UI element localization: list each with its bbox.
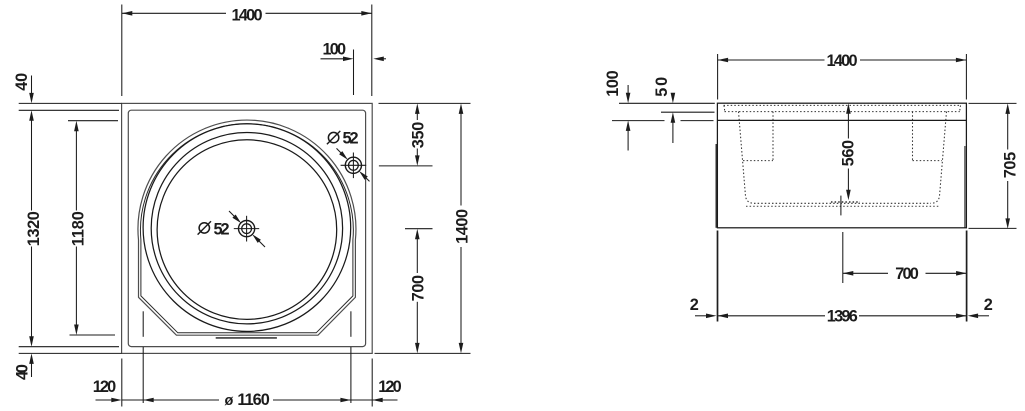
svg-text:1400: 1400 bbox=[827, 52, 858, 70]
svg-text:560: 560 bbox=[839, 140, 857, 167]
svg-text:120: 120 bbox=[378, 378, 402, 396]
svg-text:1400: 1400 bbox=[454, 209, 472, 244]
svg-text:2: 2 bbox=[690, 296, 699, 314]
svg-text:100: 100 bbox=[323, 40, 347, 58]
svg-text:40: 40 bbox=[14, 364, 32, 380]
svg-text:1400: 1400 bbox=[232, 7, 263, 25]
svg-text:2: 2 bbox=[984, 296, 993, 314]
svg-text:350: 350 bbox=[410, 122, 428, 149]
svg-text:700: 700 bbox=[410, 275, 428, 302]
svg-text:120: 120 bbox=[93, 378, 117, 396]
svg-text:40: 40 bbox=[13, 73, 31, 91]
svg-text:100: 100 bbox=[604, 70, 622, 97]
svg-text:700: 700 bbox=[895, 265, 919, 283]
svg-text:52: 52 bbox=[343, 130, 359, 148]
svg-text:52: 52 bbox=[214, 220, 230, 238]
svg-text:1396: 1396 bbox=[827, 308, 858, 326]
svg-text:1180: 1180 bbox=[70, 211, 88, 246]
svg-text:705: 705 bbox=[1002, 152, 1020, 179]
svg-text:ø1160: ø1160 bbox=[225, 391, 270, 409]
svg-text:1320: 1320 bbox=[25, 211, 43, 246]
svg-text:50: 50 bbox=[653, 77, 671, 97]
